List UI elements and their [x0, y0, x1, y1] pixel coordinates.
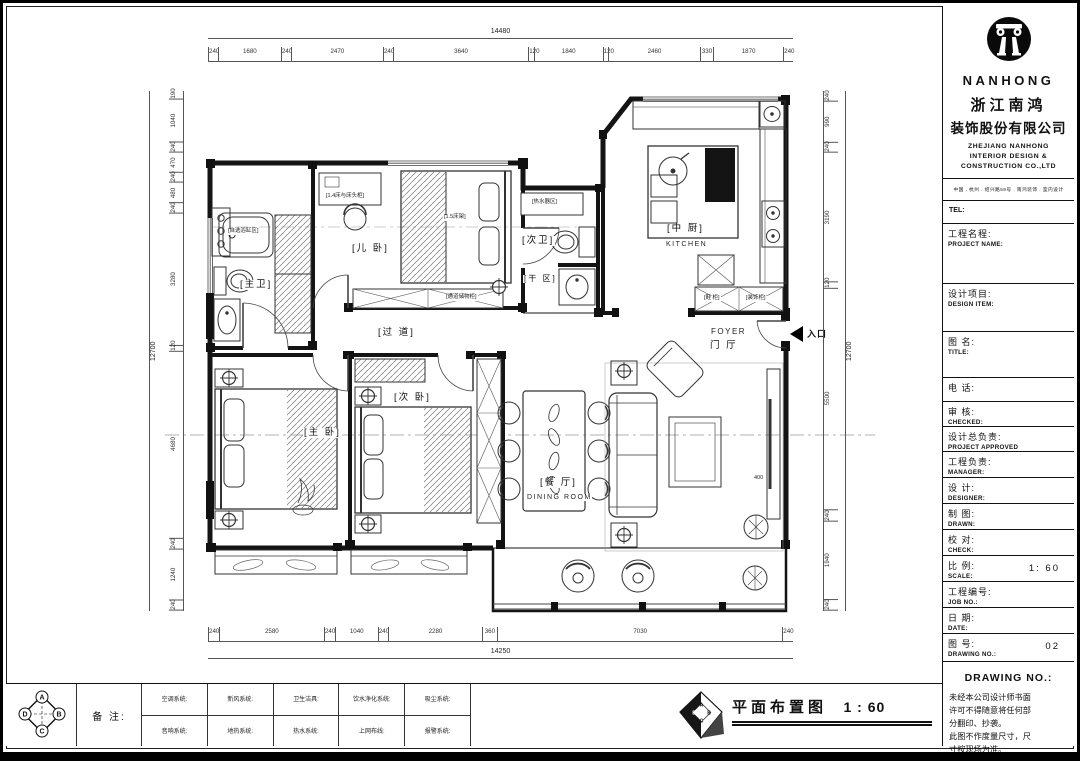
repeated-item: 240 [823, 600, 838, 611]
room-label-master-bath: [主卫] [239, 280, 273, 290]
living-room-furniture [605, 339, 783, 551]
field-phone: 电 话: [943, 377, 1074, 401]
field-date-cn: 日 期: [948, 611, 1069, 624]
dim-chain-right: 240990240319012055002401940240 [823, 91, 838, 611]
company-name-en: ZHEJIANG NANHONG INTERIOR DESIGN & CONST… [947, 142, 1070, 172]
annotation-deco-cabinet: [装饰柜] [745, 296, 767, 302]
repeated-item: 240 [383, 47, 393, 62]
pyramid-letter-d: D [692, 711, 696, 717]
field-design-item-cn: 设计项目: [948, 287, 1069, 300]
compass-letter-c: C [39, 729, 44, 736]
room-label-dry-area: [干 区] [523, 275, 558, 283]
repeated-item: 3640 [393, 47, 528, 62]
repeated-item: 热水系统: [274, 716, 340, 747]
systems-table: 空调系统:新风系统:卫生洁具:饮水净化系统:吸尘系统: 音响系统:地热系统:热水… [142, 684, 471, 746]
field-title: 图 名: TITLE: [943, 331, 1074, 377]
annotation-kids-bed: [1.5床架] [443, 215, 467, 221]
dim-overall-right: 12700 [845, 91, 857, 611]
drawing-title: 平面布置图 [732, 699, 827, 716]
dining-furniture [498, 391, 610, 511]
repeated-item: 240 [208, 47, 218, 62]
brand-name-en: NANHONG [947, 73, 1070, 88]
room-label-kitchen: [中 厨] [666, 224, 705, 234]
drawing-title-block: 平面布置图 1 : 60 [732, 696, 932, 746]
room-label-corridor: [过 道] [377, 328, 416, 338]
notes-body: 未经本公司设计师书面许可不得随意将任何部分翻印、抄袭。此图不作度量尺寸，尺寸按现… [949, 691, 1068, 761]
field-manager-cn: 工程负责: [948, 455, 1069, 468]
field-date-en: DATE: [948, 625, 1069, 632]
balcony [493, 560, 786, 611]
field-check-en: CHECK: [948, 547, 1069, 554]
repeated-item: 240 [169, 539, 184, 550]
repeated-item: 未经本公司设计师书面 [949, 691, 1068, 704]
pyramid-letter-c: C [700, 719, 704, 725]
repeated-item: 470 [169, 153, 184, 173]
repeated-item: 新风系统: [208, 684, 274, 715]
field-checked-cn: 审 核: [948, 405, 1069, 418]
repeated-item: 240 [823, 142, 838, 153]
field-drawing-no-en: DRAWING NO.: [948, 651, 1069, 658]
repeated-item: 吸尘系统: [405, 684, 470, 715]
dim-overall-bottom-value: 14250 [487, 648, 514, 655]
field-check-cn: 校 对: [948, 533, 1069, 546]
company-en-line1: ZHEJIANG NANHONG [947, 142, 1070, 152]
field-drawing-no-value: 02 [1045, 641, 1060, 652]
annotation-heater: [热水器区] [531, 200, 558, 206]
company-en-line3: CONSTRUCTION CO.,LTD [947, 162, 1070, 172]
repeated-item: 2280 [388, 627, 481, 642]
pyramid-letter-a: A [700, 703, 704, 709]
annotation-shoe-cabinet: [鞋 柜] [703, 296, 721, 302]
annotation-dim-400: 400 [753, 476, 764, 482]
field-job-no: 工程编号: JOB NO.: [943, 581, 1074, 607]
room-label-master-bedroom: [主 卧] [303, 428, 342, 438]
repeated-item: 2580 [219, 627, 324, 642]
field-design-item-en: DESIGN ITEM: [948, 301, 1069, 308]
company-en-line2: INTERIOR DESIGN & [947, 152, 1070, 162]
notes-heading: DRAWING NO.: [949, 672, 1068, 684]
repeated-item: 5500 [823, 288, 838, 510]
repeated-item: 1940 [823, 521, 838, 600]
dim-overall-top-value: 14480 [487, 28, 514, 35]
repeated-item: 饮水净化系统: [339, 684, 405, 715]
repeated-item: 990 [823, 102, 838, 143]
field-project-name-cn: 工程名程: [948, 227, 1069, 240]
remark-cell: 备 注: [76, 684, 142, 746]
repeated-item: 1040 [335, 627, 378, 642]
repeated-item: 地热系统: [208, 716, 274, 747]
field-designer: 设 计: DESIGNER: [943, 477, 1074, 503]
repeated-item: 2470 [291, 47, 383, 62]
repeated-item: 240 [823, 91, 838, 102]
repeated-item: 240 [169, 172, 184, 183]
dim-chain-top: 2401680240247024036401201840120246033018… [208, 47, 793, 62]
drawing-scale: 1 : 60 [843, 699, 885, 715]
master-bedroom-furniture [215, 369, 337, 529]
annotation-bathtub: [自选浴缸区] [227, 229, 260, 235]
repeated-item: 分翻印、抄袭。 [949, 717, 1068, 730]
field-phone-cn: 电 话: [948, 381, 1069, 394]
field-job-no-en: JOB NO.: [948, 599, 1069, 606]
footer-spacer [471, 684, 678, 746]
repeated-item: 330 [700, 47, 713, 62]
repeated-item: 3280 [169, 214, 184, 346]
field-drawn-cn: 制 图: [948, 507, 1069, 520]
field-date: 日 期: DATE: [943, 607, 1074, 633]
field-drawn-en: DRAWN: [948, 521, 1069, 528]
room-label-second-bath: [次卫] [521, 236, 555, 246]
entrance-arrow-icon [790, 326, 803, 342]
room-label-kids-room: [儿 卧] [351, 244, 390, 254]
title-block: NANHONG 浙江南鸿 装饰股份有限公司 ZHEJIANG NANHONG I… [942, 6, 1074, 746]
repeated-item: 240 [378, 627, 389, 642]
repeated-item: 240 [169, 600, 184, 611]
dim-overall-right-value: 12700 [846, 337, 853, 364]
room-label-foyer-en: FOYER [711, 328, 746, 336]
brand-name-cn-2: 装饰股份有限公司 [947, 117, 1070, 137]
field-manager: 工程负责: MANAGER: [943, 451, 1074, 477]
company-logo-section: NANHONG 浙江南鸿 装饰股份有限公司 ZHEJIANG NANHONG I… [943, 6, 1074, 178]
repeated-item: 7030 [497, 627, 782, 642]
footer-strip: A B C D 备 注: 空调系统:新风系统:卫生洁具:饮水净化系统:吸尘系统:… [6, 683, 942, 746]
repeated-item: 卫生洁具: [274, 684, 340, 715]
nanhong-column-logo-icon [986, 16, 1032, 62]
orientation-compass-icon: A B C D [16, 688, 68, 740]
repeated-item: 此图不作度量尺寸，尺 [949, 730, 1068, 743]
notes-section: DRAWING NO.: 未经本公司设计师书面许可不得随意将任何部分翻印、抄袭。… [943, 661, 1074, 761]
field-scale-value: 1: 60 [1029, 563, 1060, 574]
dim-overall-left: 12700 [149, 91, 161, 611]
annotation-corridor-storage: [通道储物柜] [445, 295, 478, 301]
repeated-item: 音响系统: [142, 716, 208, 747]
bay-windows [215, 550, 467, 574]
field-job-no-cn: 工程编号: [948, 585, 1069, 598]
field-title-cn: 图 名: [948, 335, 1069, 348]
pyramid-letter-b: B [707, 711, 711, 717]
field-drawn: 制 图: DRAWN: [943, 503, 1074, 529]
field-design-item: 设计项目: DESIGN ITEM: [943, 283, 1074, 331]
field-manager-en: MANAGER: [948, 469, 1069, 476]
annotation-kids-closet: [1.4床与床头柜] [325, 194, 365, 200]
repeated-item: 上网布线: [339, 716, 405, 747]
field-checked: 审 核: CHECKED: [943, 401, 1074, 426]
pyramid-logo-icon: A B C D [678, 690, 724, 740]
field-check: 校 对: CHECK: [943, 529, 1074, 555]
repeated-item: 240 [169, 142, 184, 153]
repeated-item: 240 [281, 47, 291, 62]
compass-letter-a: A [39, 695, 44, 702]
field-drawing-no: 图 号: DRAWING NO.: 02 [943, 633, 1074, 661]
repeated-item: 240 [208, 627, 219, 642]
repeated-item: 240 [324, 627, 335, 642]
repeated-item: 190 [169, 91, 184, 100]
systems-row-1: 空调系统:新风系统:卫生洁具:饮水净化系统:吸尘系统: [142, 684, 470, 716]
remark-label: 备 注: [92, 708, 126, 723]
repeated-item: 1840 [534, 47, 603, 62]
repeated-item: 1680 [218, 47, 281, 62]
dim-overall-bottom: 14250 [208, 647, 793, 659]
field-project-name-en: PROJECT NAME: [948, 241, 1069, 248]
room-label-kitchen-en: KITCHEN [666, 241, 707, 248]
company-address: 中国 . 杭州 . 绍兴路59号 . 南鸿装饰 . 室内设计 [943, 178, 1074, 200]
repeated-item: 2460 [608, 47, 700, 62]
repeated-item: 1870 [713, 47, 783, 62]
dim-chain-left: 1901040240470240480240328012046802401240… [169, 91, 184, 611]
repeated-item: 若有不明之处，应立即 [949, 756, 1068, 761]
field-title-en: TITLE: [948, 349, 1069, 356]
repeated-item: 1240 [169, 550, 184, 601]
room-label-foyer: 门 厅 [709, 341, 739, 351]
dim-chain-bottom: 2402580240104024022803607030240 [208, 627, 793, 642]
repeated-item: 1040 [169, 100, 184, 143]
field-project-approved: 设计总负责: PROJECT APPROVED [943, 426, 1074, 451]
room-label-dining: [餐 厅] [539, 478, 578, 488]
systems-row-2: 音响系统:地热系统:热水系统:上网布线:报警系统: [142, 716, 470, 747]
floor-plan-drawing [3, 3, 951, 691]
tel-label: TEL: [943, 200, 1074, 223]
field-designer-cn: 设 计: [948, 481, 1069, 494]
repeated-item: 360 [482, 627, 498, 642]
field-designer-en: DESIGNER: [948, 495, 1069, 502]
repeated-item: 4680 [169, 351, 184, 539]
room-label-second-bedroom: [次 卧] [393, 393, 432, 403]
compass-letter-b: B [56, 712, 61, 719]
field-scale-en: SCALE: [948, 573, 1069, 580]
repeated-item: 寸按现场为准。 [949, 743, 1068, 756]
field-project-approved-cn: 设计总负责: [948, 430, 1069, 443]
repeated-item: 240 [783, 47, 793, 62]
field-scale: 比 例: SCALE: 1: 60 [943, 555, 1074, 581]
floor-plan-area: [主卫] [儿 卧] [次卫] [干 区] [中 厨] KITCHEN [过 道… [3, 3, 951, 691]
room-label-dining-en: DINING ROOM [527, 494, 592, 501]
second-bedroom-furniture [355, 387, 471, 533]
repeated-item: 报警系统: [405, 716, 470, 747]
dim-overall-left-value: 12700 [150, 337, 157, 364]
repeated-item: 空调系统: [142, 684, 208, 715]
repeated-item: 3190 [823, 153, 838, 282]
repeated-item: 240 [782, 627, 793, 642]
repeated-item: 240 [169, 203, 184, 214]
dim-overall-top: 14480 [208, 27, 793, 39]
repeated-item: 480 [169, 183, 184, 203]
drawing-sheet: [主卫] [儿 卧] [次卫] [干 区] [中 厨] KITCHEN [过 道… [0, 0, 1080, 761]
repeated-item: 240 [823, 511, 838, 522]
compass-letter-d: D [22, 712, 27, 719]
repeated-item: 许可不得随意将任何部 [949, 704, 1068, 717]
brand-name-cn-1: 浙江南鸿 [947, 94, 1070, 115]
field-project-name: 工程名程: PROJECT NAME: [943, 223, 1074, 283]
